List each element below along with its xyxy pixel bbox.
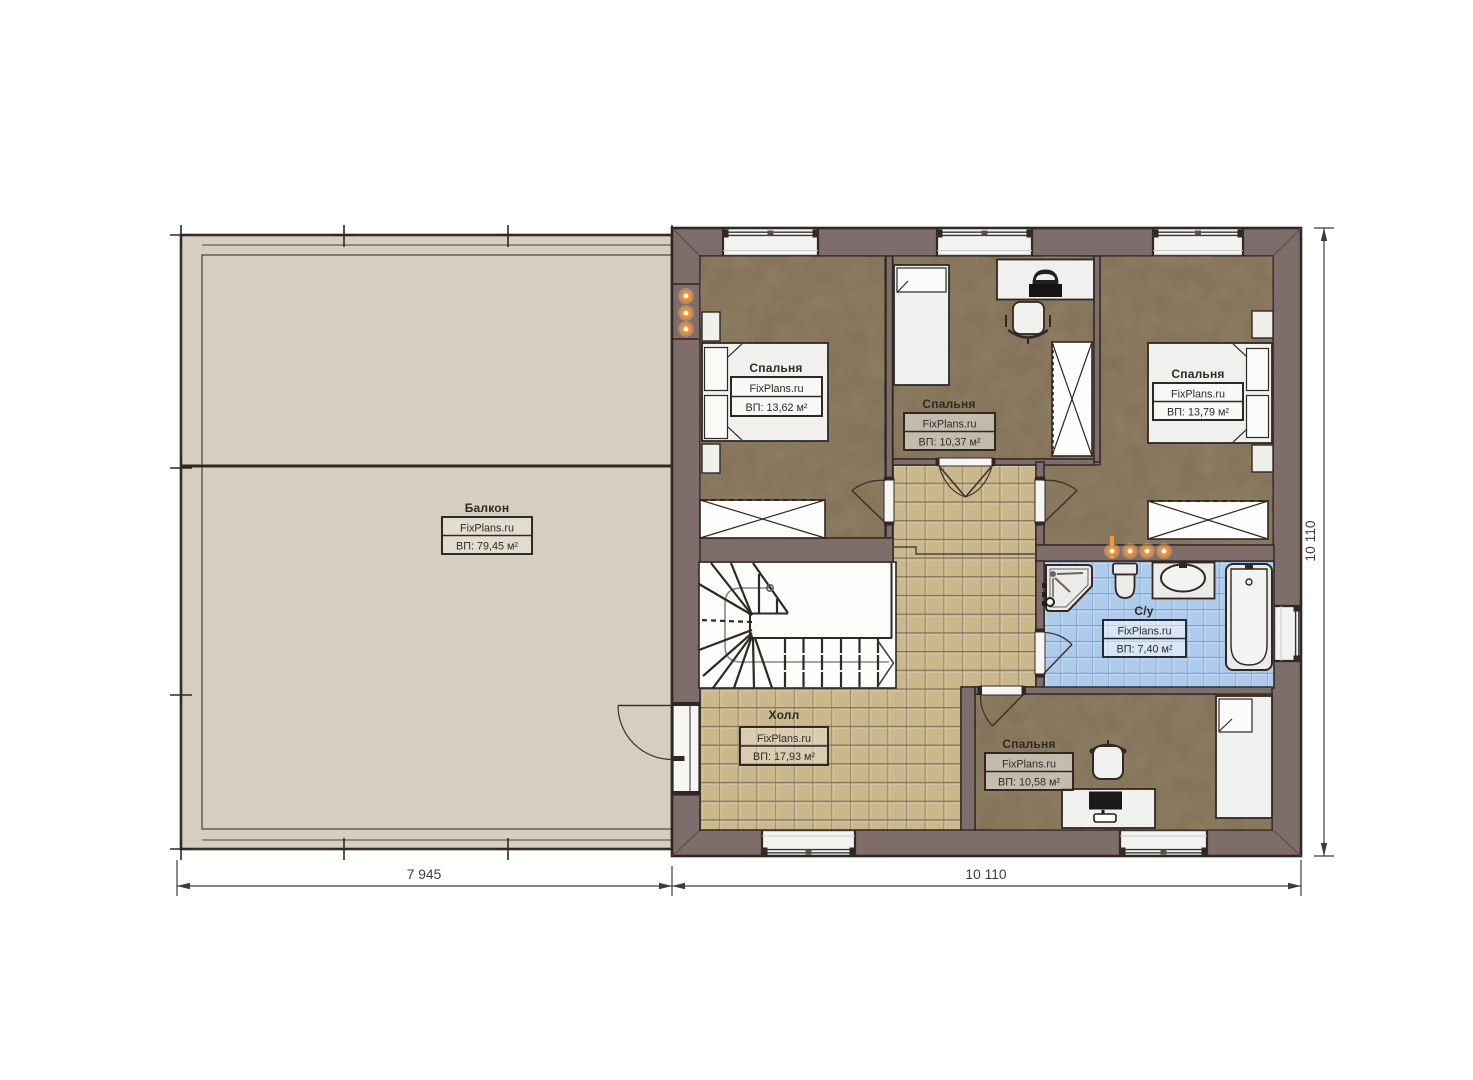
svg-text:Балкон: Балкон (465, 501, 510, 515)
svg-text:Спальня: Спальня (922, 397, 975, 411)
svg-text:FixPlans.ru: FixPlans.ru (757, 733, 811, 745)
svg-text:ВП: 79,45 м²: ВП: 79,45 м² (456, 541, 518, 553)
svg-text:ВП: 10,58 м²: ВП: 10,58 м² (998, 777, 1060, 789)
svg-text:10 110: 10 110 (965, 867, 1007, 882)
svg-text:ВП: 13,79 м²: ВП: 13,79 м² (1167, 407, 1229, 419)
svg-text:Спальня: Спальня (1002, 737, 1055, 751)
svg-text:Спальня: Спальня (749, 361, 802, 375)
svg-text:С/у: С/у (1134, 604, 1153, 618)
svg-text:ВП: 13,62 м²: ВП: 13,62 м² (746, 402, 808, 414)
svg-text:Холл: Холл (769, 708, 800, 722)
svg-text:FixPlans.ru: FixPlans.ru (1171, 389, 1225, 401)
svg-text:ВП: 17,93 м²: ВП: 17,93 м² (753, 751, 815, 763)
svg-text:10 110: 10 110 (1303, 520, 1318, 562)
svg-text:FixPlans.ru: FixPlans.ru (1117, 626, 1171, 638)
svg-text:Спальня: Спальня (1171, 367, 1224, 381)
svg-text:FixPlans.ru: FixPlans.ru (1002, 759, 1056, 771)
svg-text:FixPlans.ru: FixPlans.ru (749, 383, 803, 395)
svg-text:7 945: 7 945 (407, 867, 442, 882)
svg-text:FixPlans.ru: FixPlans.ru (460, 523, 514, 535)
svg-text:FixPlans.ru: FixPlans.ru (922, 419, 976, 431)
svg-text:ВП: 7,40 м²: ВП: 7,40 м² (1117, 644, 1173, 656)
svg-text:ВП: 10,37 м²: ВП: 10,37 м² (919, 437, 981, 449)
